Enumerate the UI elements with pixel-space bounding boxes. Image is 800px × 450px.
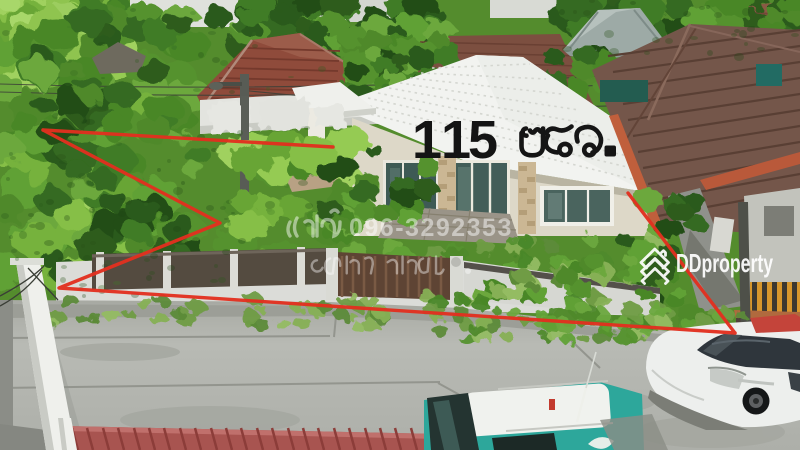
svg-text:115: 115 <box>412 110 498 170</box>
svg-text:096-3292353: 096-3292353 <box>349 214 513 242</box>
svg-text:DDproperty: DDproperty <box>676 248 773 278</box>
